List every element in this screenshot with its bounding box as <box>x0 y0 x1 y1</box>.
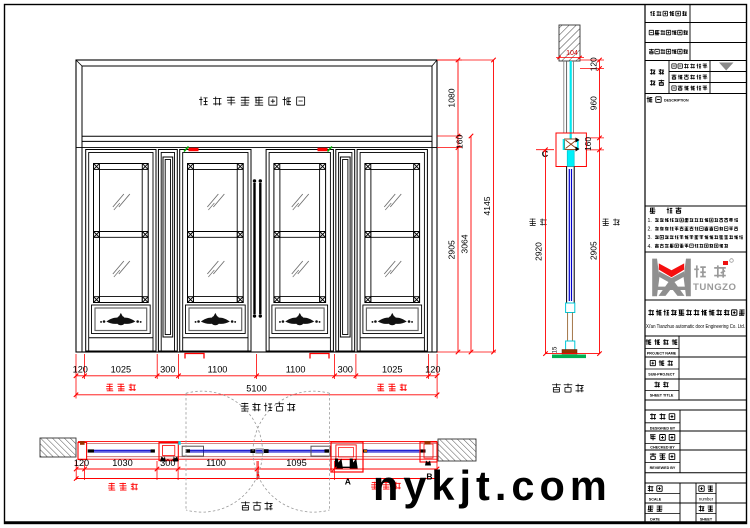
svg-text:1025: 1025 <box>382 365 402 375</box>
svg-text:1.: 1. <box>648 218 652 224</box>
svg-text:DESCRIPTION: DESCRIPTION <box>664 99 689 103</box>
svg-text:number: number <box>699 497 714 502</box>
svg-text:160: 160 <box>455 134 465 149</box>
svg-text:nykjt.com: nykjt.com <box>373 462 612 509</box>
svg-text:4.: 4. <box>648 244 652 250</box>
svg-text:2.: 2. <box>648 227 652 233</box>
svg-text:104: 104 <box>566 50 578 57</box>
svg-text:5100: 5100 <box>246 384 266 394</box>
svg-text:120: 120 <box>74 458 89 468</box>
svg-text:1030: 1030 <box>112 458 132 468</box>
svg-text:1100: 1100 <box>208 365 228 375</box>
svg-text:1100: 1100 <box>286 365 306 375</box>
svg-text:A: A <box>345 477 351 487</box>
svg-text:SHEET: SHEET <box>700 518 713 522</box>
svg-text:160: 160 <box>583 137 593 151</box>
svg-text:DATE: DATE <box>650 518 660 522</box>
svg-text:4145: 4145 <box>482 196 492 215</box>
svg-text:REVIEWED BY: REVIEWED BY <box>650 466 676 470</box>
svg-text:2905: 2905 <box>589 241 599 260</box>
svg-text:1080: 1080 <box>447 88 457 107</box>
svg-text:120: 120 <box>73 365 88 375</box>
svg-text:300: 300 <box>338 365 353 375</box>
svg-text:15: 15 <box>553 346 559 353</box>
svg-text:3.: 3. <box>648 235 652 241</box>
svg-text:2920: 2920 <box>534 242 544 261</box>
svg-text:3064: 3064 <box>460 234 470 253</box>
svg-text:300: 300 <box>160 458 175 468</box>
svg-text:Xi'an Tianzhuo automatic door: Xi'an Tianzhuo automatic door Engineerin… <box>646 324 745 330</box>
svg-text:120: 120 <box>589 57 599 71</box>
svg-text:300: 300 <box>160 365 175 375</box>
svg-text:DESIGNED BY: DESIGNED BY <box>650 427 676 431</box>
svg-text:TUNGZO: TUNGZO <box>693 282 737 293</box>
svg-text:120: 120 <box>425 365 440 375</box>
svg-text:1100: 1100 <box>206 458 226 468</box>
svg-text:SCALE: SCALE <box>649 498 662 502</box>
svg-text:SUB-PROJECT: SUB-PROJECT <box>648 373 675 377</box>
svg-text:960: 960 <box>589 96 599 110</box>
svg-text:CHECKED BY: CHECKED BY <box>650 445 675 449</box>
svg-text:2905: 2905 <box>447 240 457 259</box>
svg-text:1025: 1025 <box>111 365 131 375</box>
svg-text:PROJECT NAME: PROJECT NAME <box>647 352 677 356</box>
svg-text:1095: 1095 <box>286 458 306 468</box>
svg-text:SHEET TITLE: SHEET TITLE <box>650 394 674 398</box>
